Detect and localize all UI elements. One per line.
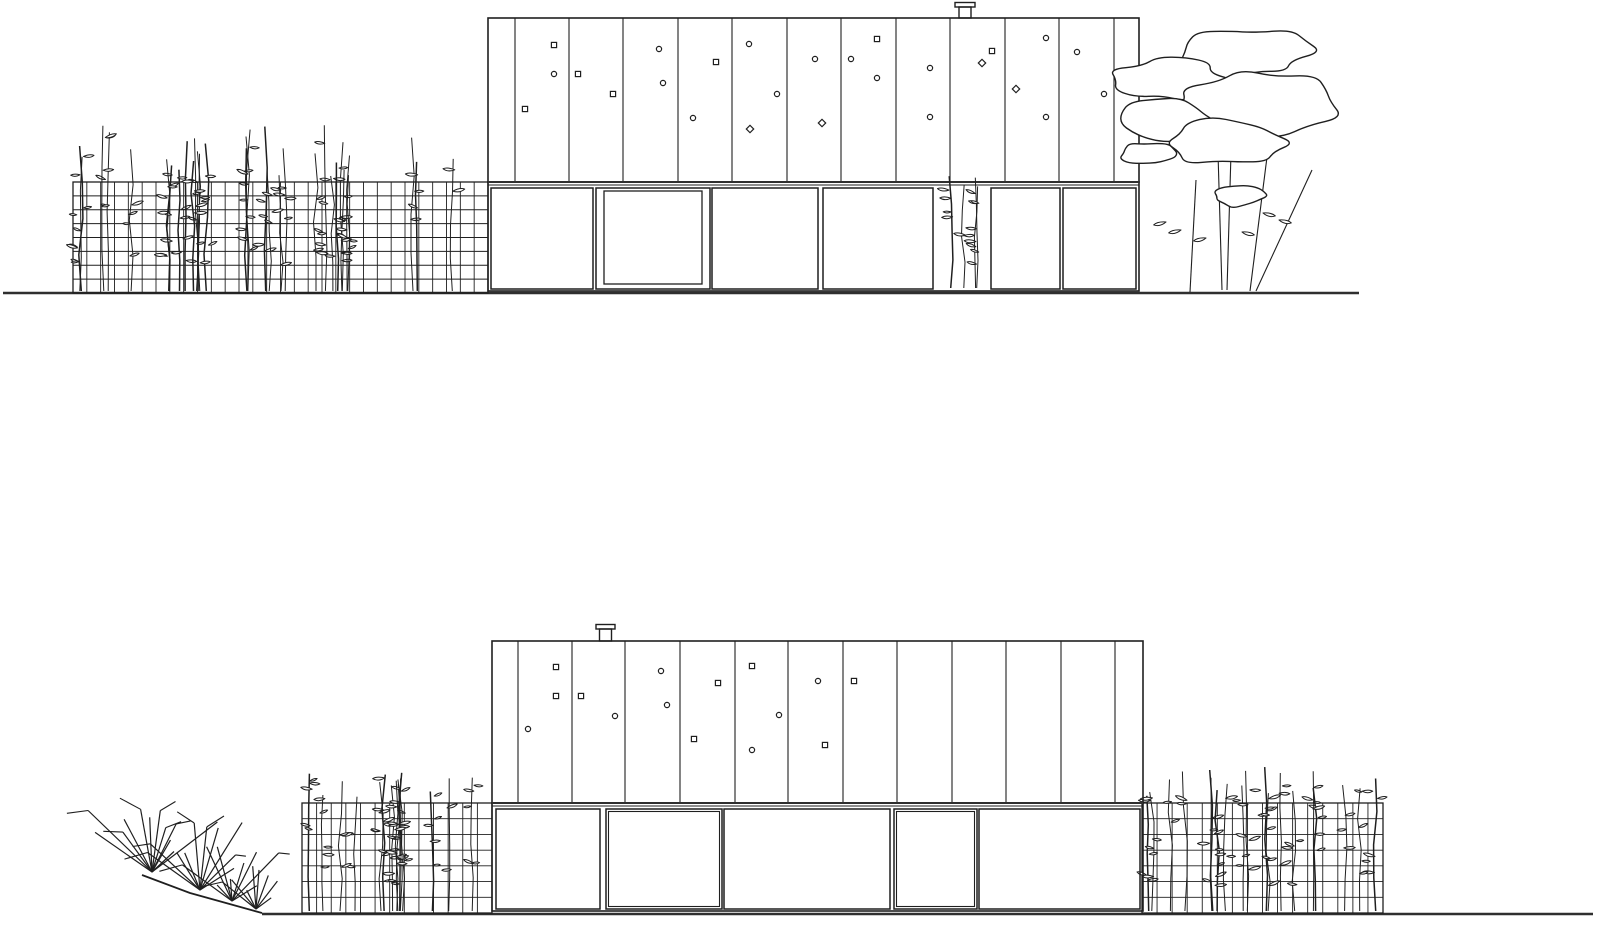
leaf xyxy=(71,173,80,177)
plant-stem xyxy=(283,148,287,291)
leaf xyxy=(434,793,442,797)
plant-stem xyxy=(354,797,357,911)
lower-elevation xyxy=(67,625,1593,915)
leaf xyxy=(1314,785,1323,788)
leaf xyxy=(1249,866,1261,870)
leaf xyxy=(205,174,215,178)
leaf xyxy=(323,852,334,857)
leaf xyxy=(1215,848,1223,852)
facade-panel xyxy=(724,809,890,909)
leaf xyxy=(1358,823,1368,828)
building-facade xyxy=(492,625,1143,912)
facade-dot xyxy=(713,59,718,64)
leaf xyxy=(943,210,951,213)
grass-blade xyxy=(256,881,277,909)
facade-dot xyxy=(978,59,985,66)
elevation-drawing xyxy=(0,0,1600,927)
leaf xyxy=(1227,854,1236,858)
tree-canopy xyxy=(1113,31,1339,207)
facade-dot xyxy=(1101,91,1106,96)
leaf xyxy=(1344,846,1356,850)
tree-trunk xyxy=(1250,157,1267,291)
leaf xyxy=(396,861,407,866)
grass-blade-tip xyxy=(207,816,224,827)
plant-stem xyxy=(204,144,209,291)
gabion-wall xyxy=(301,773,492,913)
leaf xyxy=(1267,827,1276,830)
leaf xyxy=(954,233,966,236)
facade-lower-band xyxy=(488,176,1139,291)
leaf xyxy=(183,235,194,239)
facade-dot xyxy=(578,693,583,698)
leaf xyxy=(1377,796,1387,799)
facade-panel xyxy=(823,188,933,289)
chimney xyxy=(955,3,975,19)
leaf xyxy=(320,810,328,814)
leaf xyxy=(284,217,292,220)
facade-dot xyxy=(691,736,696,741)
facade-dot xyxy=(664,702,669,707)
leaf xyxy=(305,827,313,830)
facade-dot xyxy=(818,119,825,126)
leaf xyxy=(1318,816,1326,818)
leaf xyxy=(1250,788,1261,793)
facade-dot xyxy=(660,80,665,85)
plant-stem xyxy=(1358,788,1362,911)
grass-blade-tip xyxy=(67,811,88,814)
leaf xyxy=(66,244,78,249)
tree-trunk xyxy=(1227,153,1231,290)
facade-panel xyxy=(991,188,1060,289)
facade-panel xyxy=(1063,188,1136,289)
facade-dot xyxy=(927,114,932,119)
facade-dot xyxy=(551,71,556,76)
tree-canopy-blob xyxy=(1121,144,1177,164)
tree-trunk xyxy=(1256,170,1312,291)
facade-dot xyxy=(715,680,720,685)
leaf xyxy=(315,141,325,144)
leaf xyxy=(464,805,472,809)
leaf xyxy=(194,210,207,215)
facade-dot xyxy=(612,713,617,718)
facade-dot xyxy=(1074,49,1079,54)
facade-dot xyxy=(553,693,558,698)
facade-dot xyxy=(776,712,781,717)
facade-lower-band xyxy=(492,803,1143,911)
leaf xyxy=(937,188,948,191)
lower-band-outline xyxy=(492,803,1143,911)
lower-band-outline xyxy=(488,182,1139,291)
leaf xyxy=(966,189,976,194)
plant-stem xyxy=(471,778,473,911)
facade-panel xyxy=(491,188,593,289)
leaf xyxy=(1302,796,1313,800)
leaf xyxy=(1193,236,1206,244)
leaf xyxy=(401,787,411,791)
plant-stem xyxy=(331,176,335,291)
leaf xyxy=(1145,846,1154,849)
facade-dot xyxy=(874,75,879,80)
leaf xyxy=(474,784,483,788)
leaf xyxy=(1163,800,1172,804)
grass-blade-tip xyxy=(120,798,141,809)
leaf xyxy=(1226,796,1238,799)
leaf xyxy=(405,859,413,861)
tree xyxy=(1113,31,1339,292)
grass-blade xyxy=(95,832,152,872)
facade-panel xyxy=(979,809,1140,909)
plant-stem xyxy=(308,774,309,911)
leaf xyxy=(453,188,465,192)
leaf xyxy=(339,166,348,169)
leaf xyxy=(309,781,320,786)
window-inner xyxy=(604,191,702,284)
plant-stem xyxy=(267,172,271,292)
leaf xyxy=(1337,827,1347,832)
leaf xyxy=(1249,836,1261,841)
facade-dot xyxy=(690,115,695,120)
plant-stem xyxy=(324,125,327,291)
leaf xyxy=(336,228,347,231)
leaf xyxy=(1242,854,1250,857)
chimney-body xyxy=(959,7,971,18)
leaf xyxy=(1362,859,1370,863)
leaf xyxy=(315,243,326,246)
upper-elevation xyxy=(3,3,1359,294)
facade-dot xyxy=(525,726,530,731)
facade-dot xyxy=(749,747,754,752)
tree-trunk xyxy=(1190,180,1196,292)
leaf xyxy=(200,261,210,264)
grass-blade-tip xyxy=(103,831,123,832)
leaf xyxy=(83,154,94,157)
leaf xyxy=(256,199,265,203)
leaf xyxy=(1362,789,1373,793)
facade-panel xyxy=(712,188,818,289)
facade-dot xyxy=(746,125,753,132)
chimney-body xyxy=(600,629,612,641)
leaf xyxy=(1197,841,1209,846)
facade-dot xyxy=(553,664,558,669)
plant-stem xyxy=(1147,796,1149,911)
plant-stem xyxy=(949,176,953,288)
leaf xyxy=(250,246,259,250)
leaf xyxy=(1296,839,1303,842)
tree-trunk xyxy=(1218,153,1222,290)
building-facade xyxy=(488,3,1139,292)
leaf xyxy=(1149,852,1158,854)
facade-dot xyxy=(812,56,817,61)
plant-stem xyxy=(450,159,453,291)
leaf xyxy=(386,805,397,809)
leaf xyxy=(250,145,260,149)
leaf xyxy=(314,796,325,801)
facade-dot xyxy=(1043,114,1048,119)
facade-perforations xyxy=(522,35,1106,132)
plant-stem xyxy=(1182,772,1187,912)
facade-dot xyxy=(575,71,580,76)
plant-stem xyxy=(1150,792,1154,911)
facade-dot xyxy=(815,678,820,683)
leaf xyxy=(103,168,114,172)
facade-dot xyxy=(746,41,751,46)
gabion-wall xyxy=(1137,767,1387,913)
grass-blade-tip xyxy=(166,822,181,828)
grass-blade-tip xyxy=(279,853,290,854)
leaf xyxy=(309,778,317,781)
facade-dot xyxy=(551,42,556,47)
leaf xyxy=(319,202,328,205)
leaf xyxy=(1269,795,1281,800)
plant-stem xyxy=(416,162,418,291)
upper-band-outline xyxy=(488,18,1139,182)
plant-stem xyxy=(129,149,133,291)
leaf xyxy=(156,194,167,198)
gabion-wall xyxy=(66,125,488,293)
leaf xyxy=(373,776,385,782)
grass-blade-tip xyxy=(177,812,194,823)
panel-inner-line xyxy=(897,812,975,907)
leaf xyxy=(1215,872,1227,878)
plant-stem xyxy=(107,132,109,291)
leaf xyxy=(1212,815,1224,819)
facade-dot xyxy=(927,65,932,70)
plant-stem xyxy=(411,138,414,291)
leaf xyxy=(940,196,951,200)
facade-dot xyxy=(749,663,754,668)
plant-stem xyxy=(314,153,318,291)
leaf xyxy=(1153,220,1166,228)
leaf xyxy=(1236,864,1243,867)
plant-stem xyxy=(178,170,180,291)
leaf xyxy=(208,241,217,246)
gabion-planting xyxy=(1137,767,1387,911)
facade-panel xyxy=(894,809,977,909)
leaf xyxy=(236,227,247,231)
leaf xyxy=(1263,211,1276,219)
planting-slot xyxy=(937,176,979,288)
plant-stem xyxy=(1313,771,1314,911)
leaf xyxy=(252,242,264,247)
plant-stem xyxy=(449,778,450,911)
facade-panel xyxy=(606,809,722,909)
facade-perforations xyxy=(525,663,856,752)
plant-stem xyxy=(102,126,104,291)
grass-blade xyxy=(123,832,152,872)
leaf xyxy=(382,871,394,876)
leaf xyxy=(1345,813,1355,816)
facade-dot xyxy=(1043,35,1048,40)
leaf xyxy=(161,239,173,242)
facade-dot xyxy=(874,36,879,41)
leaf xyxy=(301,787,312,790)
leaf xyxy=(1287,883,1296,886)
facade-dot xyxy=(822,742,827,747)
facade-dot xyxy=(656,46,661,51)
facade-dot xyxy=(522,106,527,111)
leaf xyxy=(1233,799,1241,803)
leaf xyxy=(239,182,248,185)
plant-stem xyxy=(279,175,283,291)
chimney xyxy=(596,625,615,642)
window-panel xyxy=(596,188,710,289)
facade-dot xyxy=(774,91,779,96)
leaf xyxy=(262,192,272,196)
panel-inner-line xyxy=(609,812,720,907)
plant-stem xyxy=(1374,779,1377,912)
grass-blade-tip xyxy=(236,855,246,856)
leaf xyxy=(105,133,117,138)
leaf xyxy=(1354,790,1362,793)
grass-tuft xyxy=(67,798,290,909)
leaf xyxy=(1168,228,1181,236)
leaf xyxy=(84,206,92,208)
gabion-planting xyxy=(301,773,483,911)
leaf xyxy=(95,175,106,180)
facade-dot xyxy=(851,678,856,683)
upper-band-outline xyxy=(492,641,1143,803)
leaf xyxy=(1242,230,1255,238)
grass-blade xyxy=(194,823,200,890)
facade-panel xyxy=(496,809,600,909)
facade-dot xyxy=(658,668,663,673)
leaf xyxy=(73,228,81,232)
grass-blade-tip xyxy=(160,802,175,811)
tree-canopy-blob xyxy=(1215,186,1267,208)
plant-stem xyxy=(338,781,342,911)
leaf xyxy=(1175,795,1188,801)
leaf xyxy=(69,213,77,215)
leaf xyxy=(130,253,140,257)
facade-dot xyxy=(989,48,994,53)
facade-dot xyxy=(610,91,615,96)
cad-drawing-canvas xyxy=(0,0,1600,927)
facade-dot xyxy=(848,56,853,61)
leaf xyxy=(1282,784,1291,787)
facade-upper-band xyxy=(488,18,1139,182)
facade-dot xyxy=(1012,85,1019,92)
facade-upper-band xyxy=(492,641,1143,803)
leaf xyxy=(186,258,197,263)
